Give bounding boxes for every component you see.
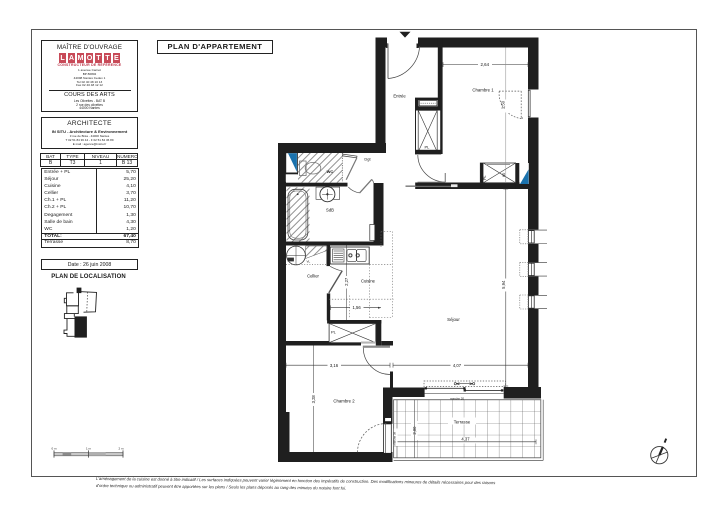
svg-text:2,27: 2,27 [344,277,349,286]
svg-text:3,16: 3,16 [330,363,339,368]
svg-text:4,07: 4,07 [453,363,462,368]
svg-text:Entrée: Entrée [393,94,406,99]
svg-text:Cellier: Cellier [307,274,319,279]
svg-text:3,28: 3,28 [311,395,316,404]
svg-text:Cuisine: Cuisine [361,279,376,284]
svg-text:SdB: SdB [326,208,334,213]
svg-text:WC: WC [327,169,334,174]
svg-text:1,56: 1,56 [353,305,362,310]
svg-text:Chambre 2: Chambre 2 [333,399,355,404]
svg-text:2,64: 2,64 [481,62,490,67]
svg-text:PL: PL [483,175,487,180]
svg-text:Chambre 1: Chambre 1 [472,88,494,93]
svg-text:60: 60 [502,173,506,177]
svg-text:1,50: 1,50 [501,100,506,109]
svg-text:Dgt: Dgt [364,157,371,162]
svg-text:1 m: 1 m [86,447,92,451]
svg-text:2,00: 2,00 [412,426,417,435]
svg-text:Séjour: Séjour [447,317,460,322]
svg-text:0 m: 0 m [51,447,57,451]
svg-text:5,94: 5,94 [501,280,506,289]
svg-text:PL: PL [425,145,431,150]
svg-text:marche 38: marche 38 [393,431,397,445]
svg-text:4,37: 4,37 [461,437,470,442]
svg-text:2 m: 2 m [118,447,124,451]
svg-text:PL: PL [331,330,337,335]
svg-text:VL: VL [307,260,311,264]
svg-text:Terrasse: Terrasse [454,419,471,424]
svg-text:a: a [520,117,524,119]
